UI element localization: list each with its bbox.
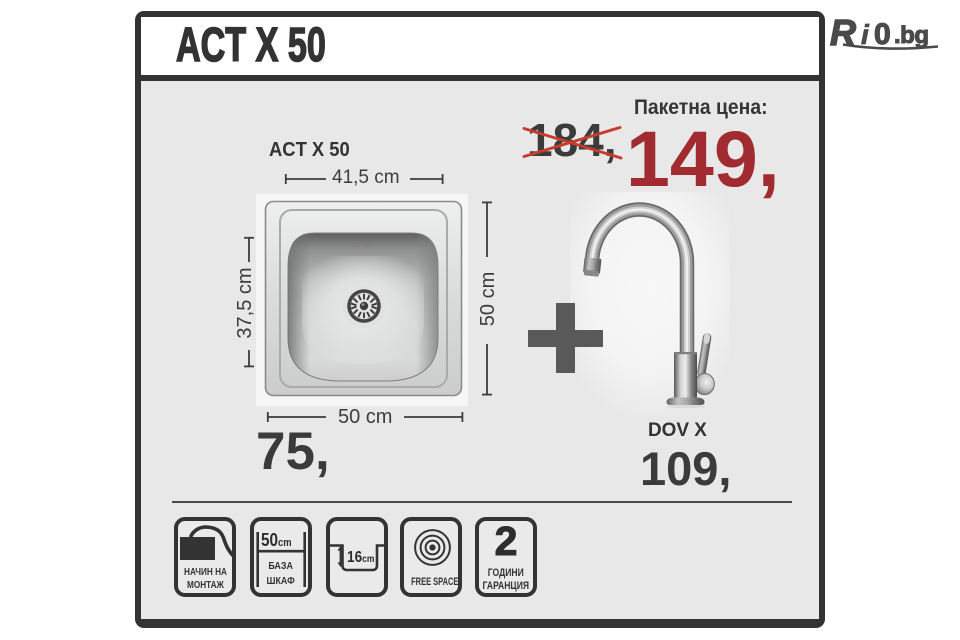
svg-text:50 - 25: 50 - 25 [353, 243, 370, 249]
